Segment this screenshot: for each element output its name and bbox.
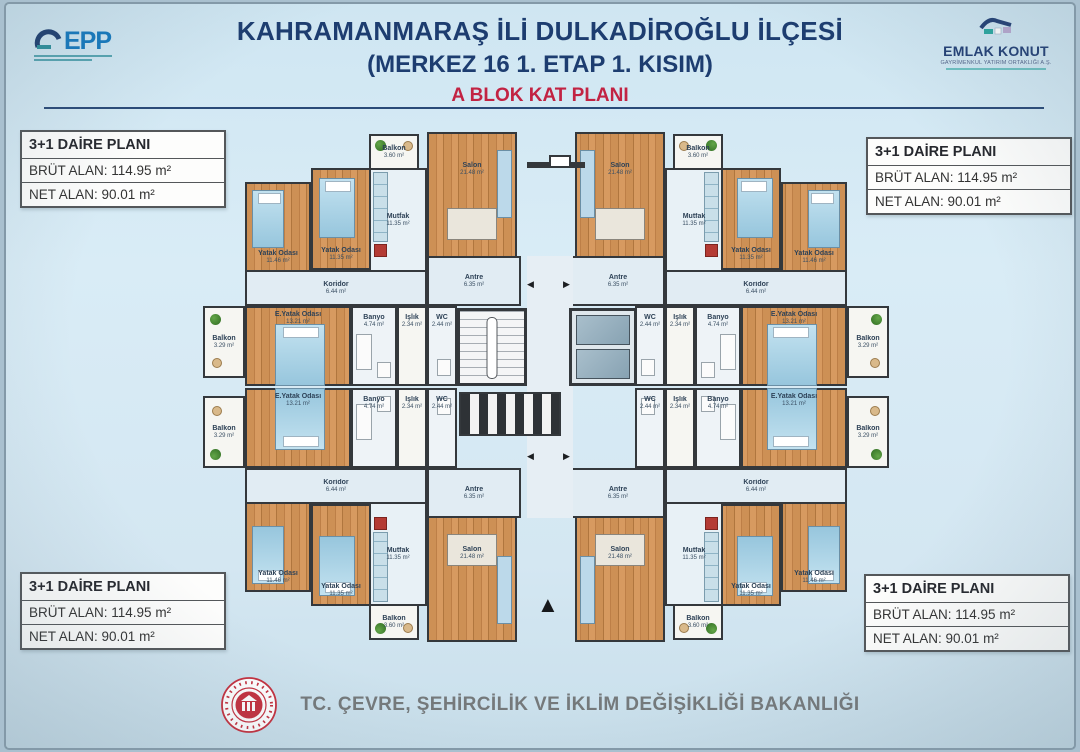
- room-label: Balkon: [856, 425, 879, 433]
- room-area: 6.35 m²: [464, 494, 484, 501]
- floor-plan: Balkon3.60 m² Yatak Odası11.35 m² Mutfak…: [201, 122, 891, 652]
- double-bed-icon: [767, 388, 817, 450]
- room-label: Koridor: [743, 281, 768, 289]
- toilet-icon: [641, 359, 655, 376]
- footer: TC. ÇEVRE, ŞEHİRCİLİK VE İKLİM DEĞİŞİKLİ…: [6, 676, 1074, 734]
- balcony-table-icon: [679, 623, 689, 633]
- room-area: 3.29 m²: [214, 343, 234, 350]
- room-bedroom-2: Yatak Odası11.35 m²: [721, 504, 781, 606]
- apartment-type-label: 3+1 DAİRE PLANI: [22, 574, 224, 600]
- room-area: 11.46 m²: [802, 258, 825, 265]
- net-area-label: NET ALAN: 90.01 m²: [22, 624, 224, 648]
- room-label: Balkon: [212, 335, 235, 343]
- room-bathroom: Banyo4.74 m²: [695, 388, 741, 468]
- room-area: 3.29 m²: [858, 343, 878, 350]
- info-box-bottom-right: 3+1 DAİRE PLANI BRÜT ALAN: 114.95 m² NET…: [864, 574, 1070, 652]
- room-bedroom-1: Yatak Odası11.46 m²: [245, 182, 311, 272]
- plant-icon: [871, 314, 882, 325]
- room-label: Antre: [465, 486, 483, 494]
- room-corridor: Koridor6.44 m²: [245, 468, 427, 504]
- room-balcony-kitchen: Balkon3.60 m²: [673, 604, 723, 640]
- net-area-label: NET ALAN: 90.01 m²: [22, 182, 224, 206]
- room-area: 6.44 m²: [746, 487, 766, 494]
- room-entry: Antre6.35 m²: [427, 468, 521, 518]
- room-kitchen: Mutfak11.35 m²: [369, 502, 427, 606]
- bathtub-icon: [356, 404, 372, 440]
- sofa-icon: [580, 556, 595, 624]
- top-connector-notch: [549, 155, 571, 168]
- balcony-table-icon: [679, 141, 689, 151]
- apartment-type-label: 3+1 DAİRE PLANI: [22, 132, 224, 158]
- net-area-label: NET ALAN: 90.01 m²: [868, 189, 1070, 213]
- toilet-icon: [377, 396, 391, 412]
- bed-icon: [252, 190, 284, 248]
- room-living-room: Salon21.48 m²: [427, 132, 517, 258]
- room-area: 4.74 m²: [364, 322, 384, 329]
- room-area: 21.48 m²: [460, 170, 484, 177]
- room-bedroom-2: Yatak Odası11.35 m²: [311, 168, 371, 270]
- room-label: Balkon: [856, 335, 879, 343]
- room-corridor: Koridor6.44 m²: [665, 468, 847, 504]
- room-balcony-side: Balkon3.29 m²: [847, 306, 889, 378]
- room-lightwell: Işlık2.34 m²: [665, 388, 695, 468]
- stove-icon: [705, 244, 718, 257]
- ministry-name: TC. ÇEVRE, ŞEHİRCİLİK VE İKLİM DEĞİŞİKLİ…: [300, 694, 859, 716]
- room-bedroom-1: Yatak Odası11.46 m²: [781, 182, 847, 272]
- bathtub-icon: [720, 334, 736, 370]
- room-area: 4.74 m²: [708, 322, 728, 329]
- room-label: Balkon: [686, 615, 709, 623]
- balcony-table-icon: [212, 358, 222, 368]
- room-bathroom: Banyo4.74 m²: [351, 388, 397, 468]
- dining-table-icon: [595, 208, 645, 240]
- room-corridor: Koridor6.44 m²: [665, 270, 847, 306]
- room-area: 3.60 m²: [384, 623, 404, 630]
- room-bedroom-2: Yatak Odası11.35 m²: [311, 504, 371, 606]
- room-lightwell: Işlık2.34 m²: [397, 388, 427, 468]
- toilet-icon: [641, 398, 655, 415]
- room-lightwell: Işlık2.34 m²: [665, 306, 695, 386]
- balcony-table-icon: [212, 406, 222, 416]
- room-area: 6.44 m²: [326, 487, 346, 494]
- entry-door-arrow: ▶: [563, 452, 570, 461]
- toilet-icon: [701, 362, 715, 378]
- elevator-shaft: [569, 308, 637, 386]
- double-bed-icon: [767, 324, 817, 386]
- room-area: 2.34 m²: [402, 404, 422, 411]
- room-entry: Antre6.35 m²: [571, 468, 665, 518]
- room-area: 6.44 m²: [326, 289, 346, 296]
- gross-area-label: BRÜT ALAN: 114.95 m²: [22, 600, 224, 624]
- balcony-table-icon: [870, 358, 880, 368]
- room-label: Salon: [610, 162, 629, 170]
- kitchen-counter-icon: [704, 172, 719, 242]
- room-living-room: Salon21.48 m²: [575, 516, 665, 642]
- service-shaft: [459, 392, 561, 436]
- room-bathroom: Banyo4.74 m²: [351, 306, 397, 386]
- room-bedroom-1: Yatak Odası11.46 m²: [245, 502, 311, 592]
- room-balcony-kitchen: Balkon3.60 m²: [673, 134, 723, 170]
- bed-icon: [808, 526, 840, 584]
- room-label: Işlık: [673, 314, 687, 322]
- room-label: Yatak Odası: [794, 250, 834, 258]
- pillow-icon: [283, 436, 319, 447]
- room-label: WC: [644, 314, 656, 322]
- plant-icon: [210, 314, 221, 325]
- dining-table-icon: [447, 534, 497, 566]
- bed-icon: [319, 536, 355, 596]
- toilet-icon: [377, 362, 391, 378]
- double-bed-icon: [275, 324, 325, 386]
- north-arrow-icon: ▲: [537, 594, 559, 616]
- emlak-konut-subtext: GAYRİMENKUL YATIRIM ORTAKLIĞI A.Ş.: [936, 60, 1056, 66]
- room-area: 11.35 m²: [739, 255, 762, 262]
- room-label: Yatak Odası: [258, 250, 298, 258]
- plant-icon: [210, 449, 221, 460]
- room-area: 11.35 m²: [386, 221, 409, 228]
- info-box-bottom-left: 3+1 DAİRE PLANI BRÜT ALAN: 114.95 m² NET…: [20, 572, 226, 650]
- ministry-seal-icon: [220, 676, 278, 734]
- room-master-bedroom: E.Yatak Odası13.21 m²: [245, 388, 351, 468]
- room-area: 3.29 m²: [858, 433, 878, 440]
- room-label: WC: [436, 314, 448, 322]
- entry-door-arrow: ▶: [563, 280, 570, 289]
- room-area: 2.34 m²: [402, 322, 422, 329]
- emlak-konut-text: EMLAK KONUT: [936, 43, 1056, 59]
- plant-icon: [706, 140, 717, 151]
- room-area: 2.34 m²: [670, 404, 690, 411]
- room-area: 11.35 m²: [386, 555, 409, 562]
- room-label: Antre: [465, 274, 483, 282]
- poster-title-line1: KAHRAMANMARAŞ İLİ DULKADİROĞLU İLÇESİ: [6, 16, 1074, 47]
- gross-area-label: BRÜT ALAN: 114.95 m²: [866, 602, 1068, 626]
- balcony-table-icon: [403, 623, 413, 633]
- room-label: Işlık: [405, 314, 419, 322]
- bathtub-icon: [720, 404, 736, 440]
- room-label: Koridor: [323, 281, 348, 289]
- room-label: Koridor: [743, 479, 768, 487]
- room-balcony-side: Balkon3.29 m²: [847, 396, 889, 468]
- room-area: 3.60 m²: [688, 153, 708, 160]
- emlak-konut-tagline-line: [946, 68, 1046, 70]
- room-label: E.Yatak Odası: [771, 311, 817, 319]
- poster-subtitle: A BLOK KAT PLANI: [6, 85, 1074, 107]
- toilet-icon: [701, 396, 715, 412]
- stove-icon: [705, 517, 718, 530]
- room-area: 11.35 m²: [682, 555, 705, 562]
- room-area: 6.35 m²: [608, 282, 628, 289]
- sofa-icon: [497, 150, 512, 218]
- bathtub-icon: [356, 334, 372, 370]
- pillow-icon: [741, 582, 767, 593]
- room-entry: Antre6.35 m²: [427, 256, 521, 306]
- pillow-icon: [773, 327, 809, 338]
- bed-icon: [319, 178, 355, 238]
- pillow-icon: [773, 436, 809, 447]
- stove-icon: [374, 517, 387, 530]
- poster-title-line2: (MERKEZ 16 1. ETAP 1. KISIM): [6, 51, 1074, 79]
- gross-area-label: BRÜT ALAN: 114.95 m²: [22, 158, 224, 182]
- toilet-icon: [437, 359, 451, 376]
- info-box-top-right: 3+1 DAİRE PLANI BRÜT ALAN: 114.95 m² NET…: [866, 137, 1072, 215]
- balcony-table-icon: [403, 141, 413, 151]
- apartment-bottom-right: Balkon3.60 m² Yatak Odası11.35 m² Mutfak…: [546, 387, 891, 652]
- bed-icon: [252, 526, 284, 584]
- sofa-icon: [497, 556, 512, 624]
- toilet-icon: [437, 398, 451, 415]
- emlak-konut-icon: [978, 16, 1014, 36]
- plant-icon: [706, 623, 717, 634]
- room-label: Mutfak: [387, 213, 410, 221]
- bed-icon: [737, 536, 773, 596]
- title-block: KAHRAMANMARAŞ İLİ DULKADİROĞLU İLÇESİ (M…: [6, 16, 1074, 107]
- stove-icon: [374, 244, 387, 257]
- room-area: 11.46 m²: [266, 258, 289, 265]
- room-entry: Antre6.35 m²: [571, 256, 665, 306]
- room-master-bedroom: E.Yatak Odası13.21 m²: [245, 306, 351, 386]
- emlak-konut-logo: EMLAK KONUT GAYRİMENKUL YATIRIM ORTAKLIĞ…: [936, 16, 1056, 70]
- room-area: 11.35 m²: [329, 255, 352, 262]
- room-label: Banyo: [707, 314, 728, 322]
- pillow-icon: [325, 181, 351, 192]
- apartment-type-label: 3+1 DAİRE PLANI: [866, 576, 1068, 602]
- balcony-table-icon: [870, 406, 880, 416]
- header-divider: [44, 107, 1044, 109]
- room-label: Balkon: [212, 425, 235, 433]
- room-label: Antre: [609, 274, 627, 282]
- room-kitchen: Mutfak11.35 m²: [665, 502, 723, 606]
- room-kitchen: Mutfak11.35 m²: [369, 168, 427, 272]
- room-balcony-side: Balkon3.29 m²: [203, 306, 245, 378]
- room-label: Işlık: [673, 396, 687, 404]
- plant-icon: [375, 140, 386, 151]
- room-label: Işlık: [405, 396, 419, 404]
- room-bathroom: Banyo4.74 m²: [695, 306, 741, 386]
- room-balcony-kitchen: Balkon3.60 m²: [369, 134, 419, 170]
- room-label: Koridor: [323, 479, 348, 487]
- room-living-room: Salon21.48 m²: [427, 516, 517, 642]
- room-area: 3.60 m²: [384, 153, 404, 160]
- net-area-label: NET ALAN: 90.01 m²: [866, 626, 1068, 650]
- room-area: 3.29 m²: [214, 433, 234, 440]
- room-label: Mutfak: [683, 213, 706, 221]
- room-wc: WC2.44 m²: [427, 388, 457, 468]
- stair-rail: [487, 317, 498, 379]
- sofa-icon: [580, 150, 595, 218]
- room-area: 6.35 m²: [464, 282, 484, 289]
- room-master-bedroom: E.Yatak Odası13.21 m²: [741, 306, 847, 386]
- room-bedroom-2: Yatak Odası11.35 m²: [721, 168, 781, 270]
- dining-table-icon: [447, 208, 497, 240]
- room-lightwell: Işlık2.34 m²: [397, 306, 427, 386]
- room-balcony-side: Balkon3.29 m²: [203, 396, 245, 468]
- dining-table-icon: [595, 534, 645, 566]
- room-wc: WC2.44 m²: [635, 388, 665, 468]
- plant-icon: [375, 623, 386, 634]
- room-label: Banyo: [363, 314, 384, 322]
- entry-door-arrow: ◀: [527, 280, 534, 289]
- poster: EPP KAHRAMANMARAŞ İLİ DULKADİROĞLU İLÇES…: [6, 4, 1074, 748]
- apartment-type-label: 3+1 DAİRE PLANI: [868, 139, 1070, 165]
- gross-area-label: BRÜT ALAN: 114.95 m²: [868, 165, 1070, 189]
- bed-icon: [808, 190, 840, 248]
- room-label: E.Yatak Odası: [275, 311, 321, 319]
- room-area: 6.44 m²: [746, 289, 766, 296]
- bed-icon: [737, 178, 773, 238]
- room-label: Mutfak: [387, 547, 410, 555]
- pillow-icon: [812, 193, 835, 204]
- room-area: 11.35 m²: [682, 221, 705, 228]
- room-wc: WC2.44 m²: [427, 306, 457, 386]
- pillow-icon: [812, 570, 835, 581]
- double-bed-icon: [275, 388, 325, 450]
- pillow-icon: [258, 570, 281, 581]
- kitchen-counter-icon: [373, 172, 388, 242]
- pillow-icon: [741, 181, 767, 192]
- plant-icon: [871, 449, 882, 460]
- room-corridor: Koridor6.44 m²: [245, 270, 427, 306]
- kitchen-counter-icon: [373, 532, 388, 602]
- room-label: Balkon: [382, 615, 405, 623]
- room-label: Mutfak: [683, 547, 706, 555]
- entry-door-arrow: ◀: [527, 452, 534, 461]
- poster-photo: EPP KAHRAMANMARAŞ İLİ DULKADİROĞLU İLÇES…: [0, 0, 1080, 752]
- room-area: 6.35 m²: [608, 494, 628, 501]
- pillow-icon: [258, 193, 281, 204]
- pillow-icon: [325, 582, 351, 593]
- kitchen-counter-icon: [704, 532, 719, 602]
- room-label: Yatak Odası: [321, 247, 361, 255]
- elevator-cabin-icon: [576, 315, 630, 345]
- room-area: 2.44 m²: [432, 322, 452, 329]
- room-label: Yatak Odası: [731, 247, 771, 255]
- core-lobby-floor: [527, 256, 573, 518]
- room-label: Salon: [462, 162, 481, 170]
- room-area: 2.34 m²: [670, 322, 690, 329]
- elevator-cabin-icon: [576, 349, 630, 379]
- room-area: 21.48 m²: [608, 170, 632, 177]
- info-box-top-left: 3+1 DAİRE PLANI BRÜT ALAN: 114.95 m² NET…: [20, 130, 226, 208]
- staircase: [457, 308, 527, 386]
- room-balcony-kitchen: Balkon3.60 m²: [369, 604, 419, 640]
- room-master-bedroom: E.Yatak Odası13.21 m²: [741, 388, 847, 468]
- room-wc: WC2.44 m²: [635, 306, 665, 386]
- room-bedroom-1: Yatak Odası11.46 m²: [781, 502, 847, 592]
- room-kitchen: Mutfak11.35 m²: [665, 168, 723, 272]
- room-living-room: Salon21.48 m²: [575, 132, 665, 258]
- pillow-icon: [283, 327, 319, 338]
- room-area: 2.44 m²: [640, 322, 660, 329]
- room-label: Antre: [609, 486, 627, 494]
